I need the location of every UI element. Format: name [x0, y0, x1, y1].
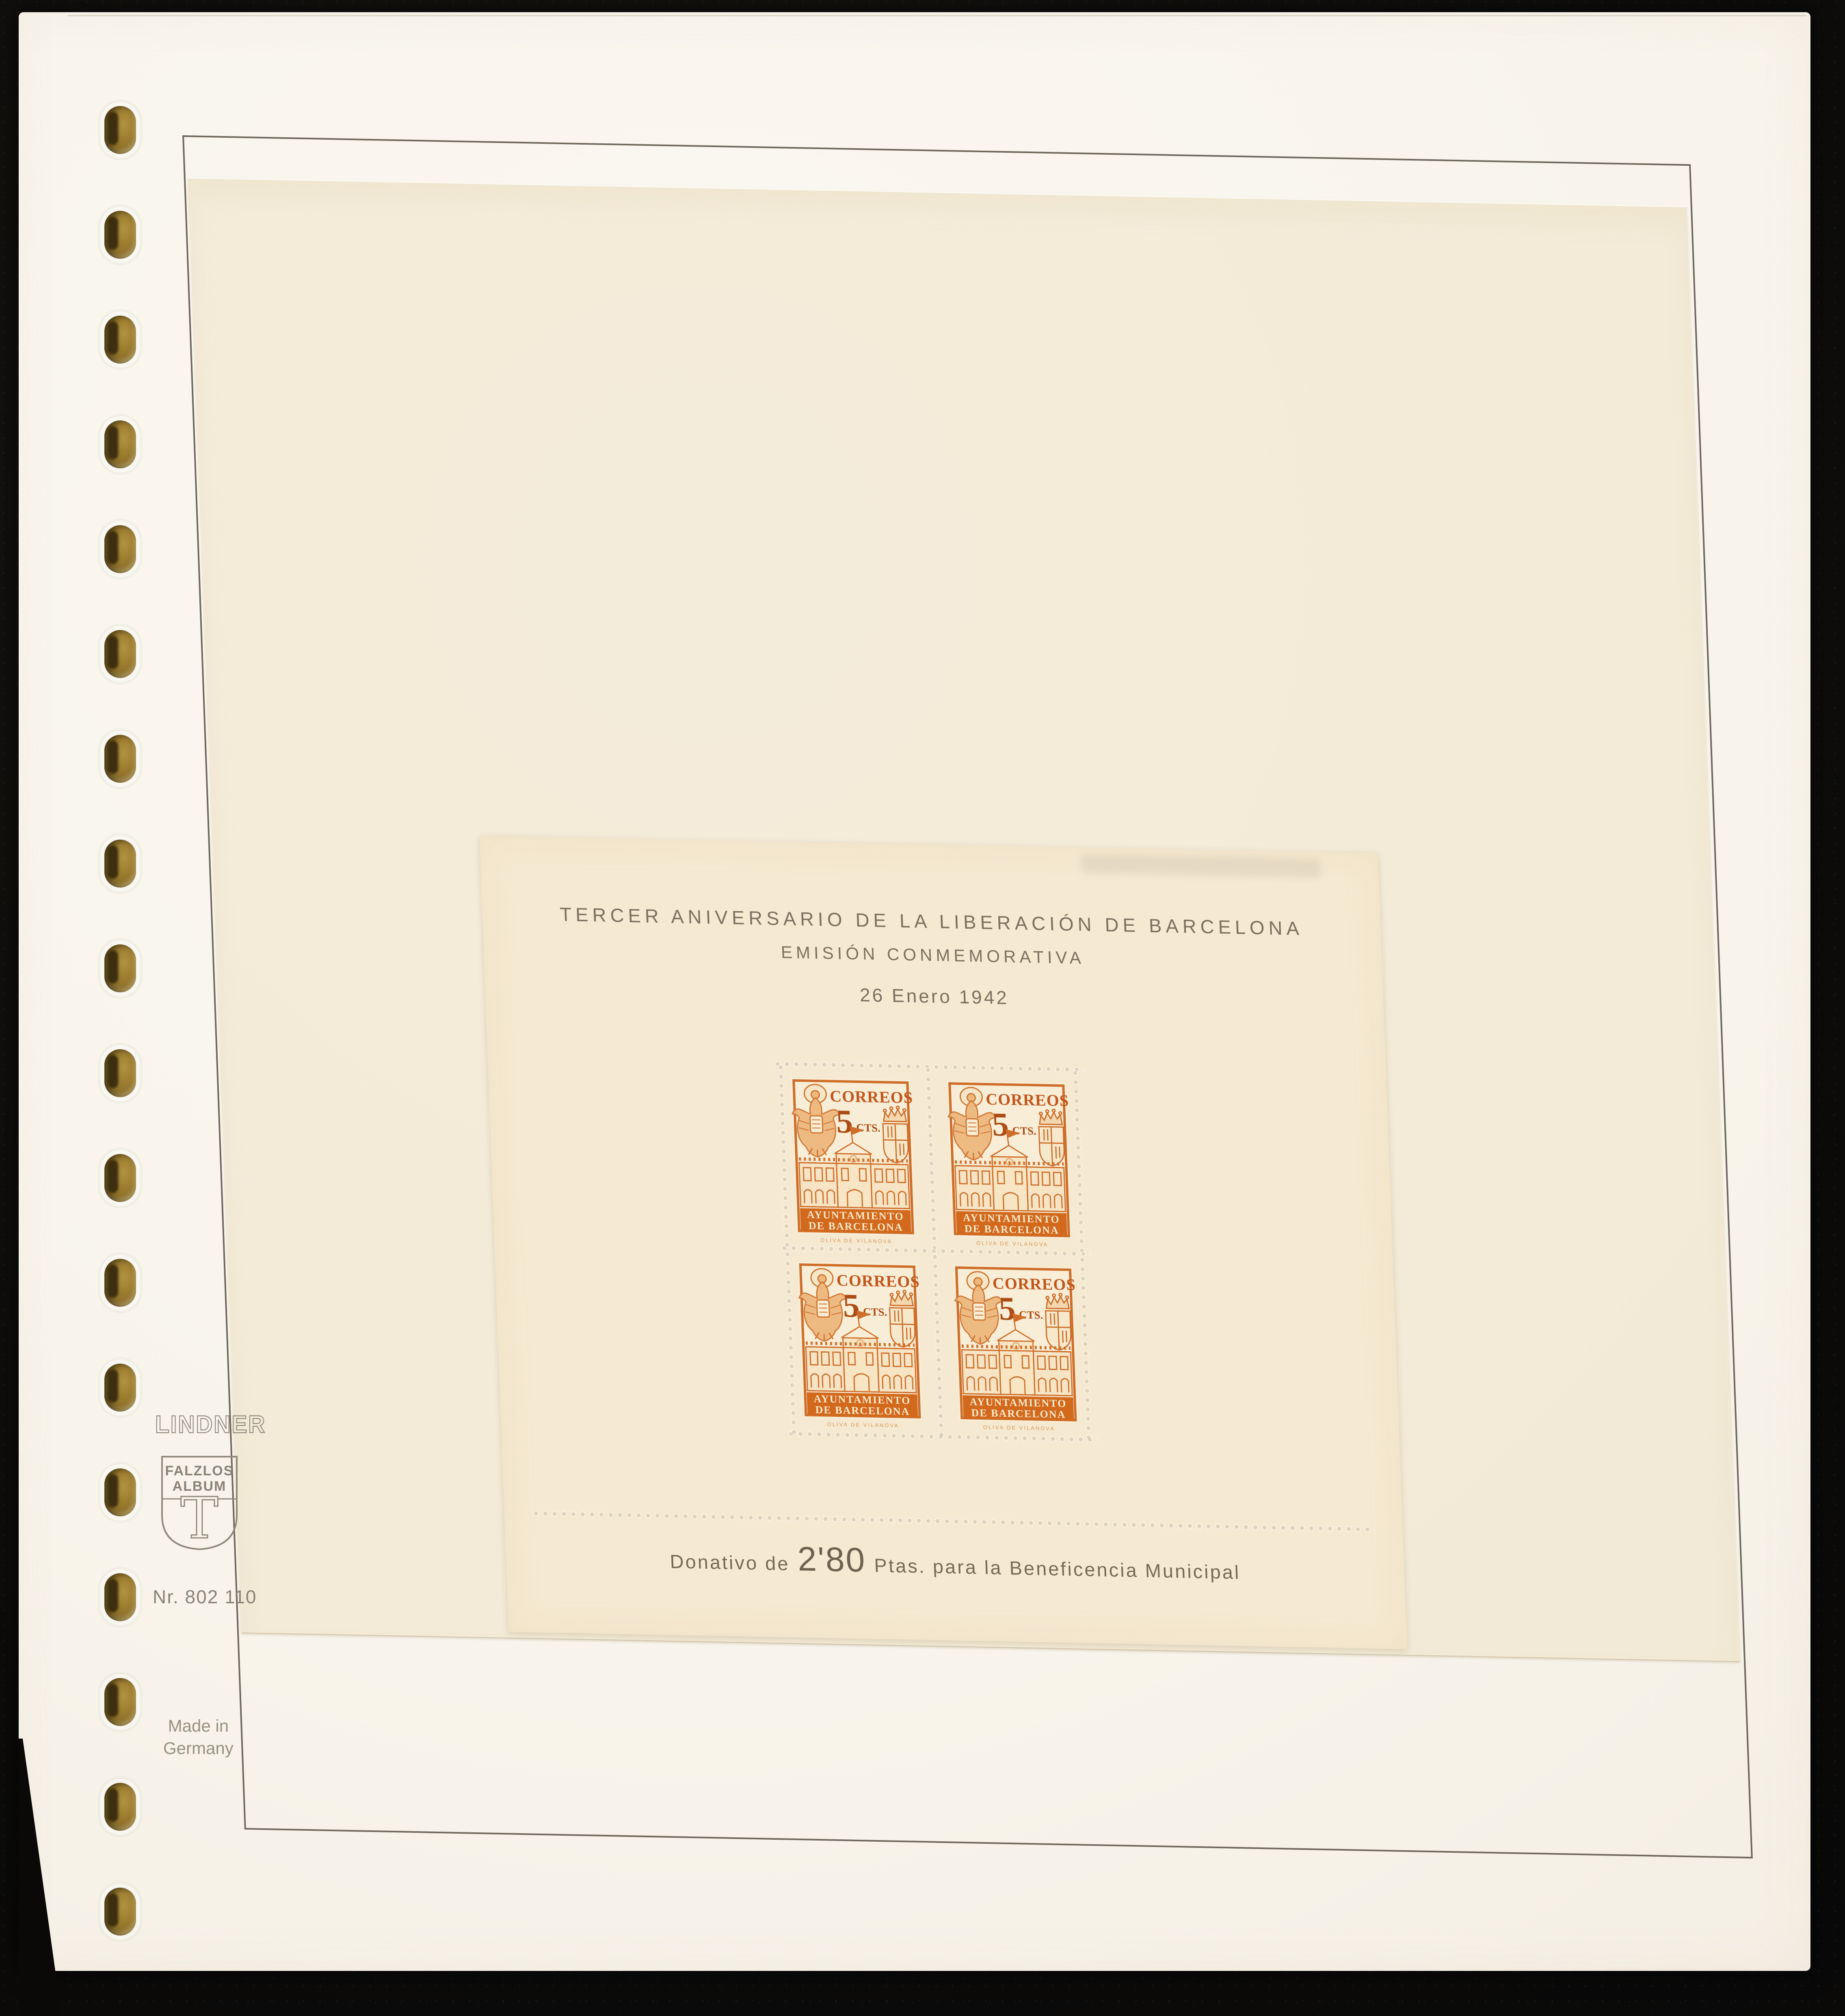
stamp-artwork: CORREOS 5 CTS.	[796, 1260, 924, 1421]
show-through-smudge	[1081, 854, 1321, 878]
brand-item-number: Nr. 802 110	[153, 1586, 257, 1608]
stamp-value-unit: CTS.	[1019, 1309, 1043, 1321]
stamp: CORREOS 5 CTS.	[789, 1076, 917, 1237]
page-print-group: TERCER ANIVERSARIO DE LA LIBERACIÓN DE B…	[14, 9, 1845, 2003]
printer-imprint: OLIVA DE VILANOVA	[951, 1239, 1073, 1248]
perforation-row-sheet-bottom	[532, 1510, 1374, 1533]
stamp-value: 5	[835, 1103, 853, 1140]
donation-suffix: Ptas. para la Beneficencia Municipal	[874, 1554, 1241, 1583]
brand-shield-icon: FALZLOS ALBUM T	[160, 1454, 239, 1552]
stamp-value: 5	[842, 1287, 860, 1324]
crowned-shield-icon	[1038, 1109, 1064, 1166]
sheet-title: TERCER ANIVERSARIO DE LA LIBERACIÓN DE B…	[482, 901, 1381, 941]
souvenir-sheet: TERCER ANIVERSARIO DE LA LIBERACIÓN DE B…	[480, 836, 1407, 1649]
stamp-artwork: CORREOS 5 CTS.	[952, 1263, 1080, 1424]
stamp: CORREOS 5 CTS.	[796, 1260, 924, 1421]
crowned-shield-icon	[882, 1106, 908, 1163]
donation-amount: 2'80	[797, 1539, 867, 1580]
brand-origin-line1: Made in	[163, 1715, 234, 1737]
stamp-banner-line2: DE BARCELONA	[971, 1407, 1066, 1420]
stamp-value: 5	[998, 1290, 1016, 1327]
stamp-artwork: CORREOS 5 CTS.	[789, 1076, 917, 1237]
donation-prefix: Donativo de	[670, 1550, 790, 1575]
stamp-artwork: CORREOS 5 CTS.	[945, 1079, 1073, 1240]
printer-imprint: OLIVA DE VILANOVA	[958, 1424, 1080, 1432]
album-page: TERCER ANIVERSARIO DE LA LIBERACIÓN DE B…	[19, 12, 1810, 1971]
stamp-banner-line2: DE BARCELONA	[964, 1223, 1059, 1236]
stamp-block: CORREOS 5 CTS.	[789, 1076, 1080, 1425]
stamp-value-unit: CTS.	[863, 1306, 887, 1318]
stamp: CORREOS 5 CTS.	[952, 1263, 1080, 1424]
stamp-banner-line2: DE BARCELONA	[815, 1404, 910, 1417]
photo-backdrop: TERCER ANIVERSARIO DE LA LIBERACIÓN DE B…	[0, 0, 1845, 2016]
brand-logo: LINDNER	[155, 1410, 266, 1438]
brand-shield-letter: T	[180, 1485, 218, 1552]
printer-imprint: OLIVA DE VILANOVA	[802, 1421, 924, 1429]
brand-shield-line1: FALZLOS	[165, 1463, 234, 1479]
brand-origin-line2: Germany	[163, 1737, 234, 1760]
stamp-banner-line2: DE BARCELONA	[808, 1220, 903, 1233]
crowned-shield-icon	[1045, 1293, 1071, 1350]
printer-imprint: OLIVA DE VILANOVA	[795, 1236, 917, 1245]
page-corner-shadow	[19, 1739, 63, 2016]
brand-origin: Made in Germany	[163, 1715, 234, 1759]
crowned-shield-icon	[889, 1290, 915, 1347]
stamp-value: 5	[991, 1106, 1009, 1143]
stamp-value-unit: CTS.	[856, 1122, 880, 1134]
sheet-subtitle: EMISIÓN CONMEMORATIVA	[483, 937, 1382, 974]
donation-line: Donativo de 2'80 Ptas. para la Beneficen…	[505, 1533, 1405, 1590]
stamp: CORREOS 5 CTS.	[945, 1079, 1073, 1240]
sheet-date: 26 Enero 1942	[485, 977, 1384, 1016]
stamp-value-unit: CTS.	[1012, 1124, 1036, 1137]
